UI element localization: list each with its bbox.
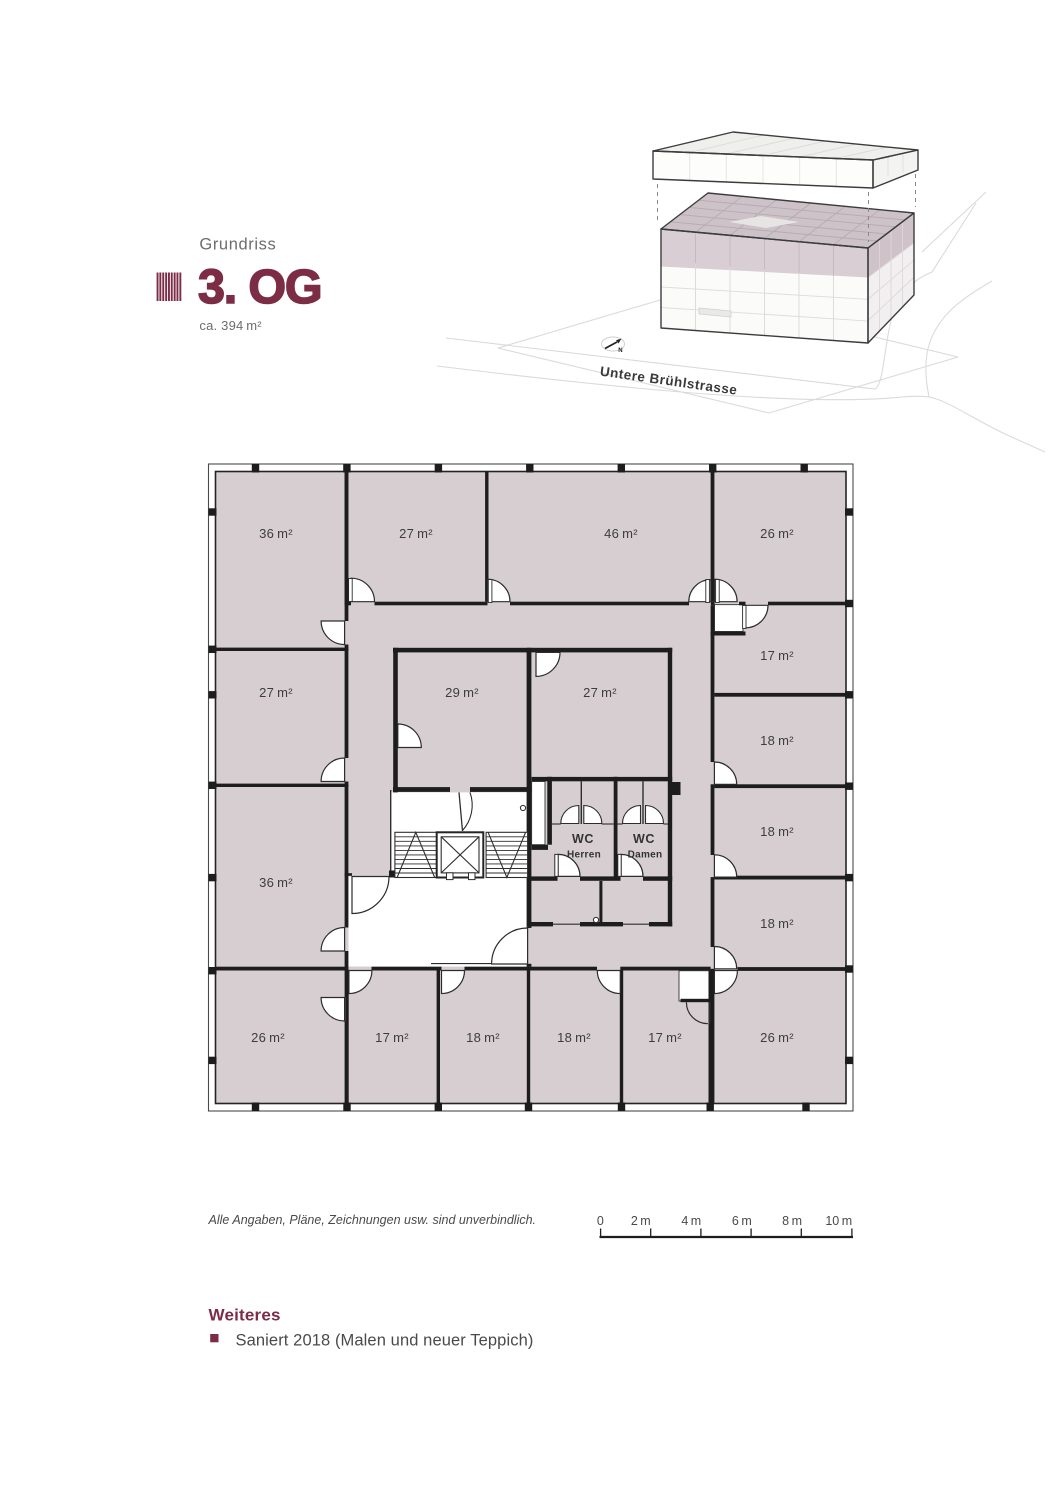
svg-text:Grundriss: Grundriss	[199, 236, 276, 254]
svg-text:WC: WC	[633, 832, 655, 846]
svg-text:36 m²: 36 m²	[259, 526, 293, 541]
svg-text:36 m²: 36 m²	[259, 875, 293, 890]
svg-text:26 m²: 26 m²	[760, 1030, 794, 1045]
svg-text:18 m²: 18 m²	[760, 824, 794, 839]
svg-text:6 m: 6 m	[732, 1214, 752, 1228]
svg-text:17 m²: 17 m²	[648, 1030, 682, 1045]
svg-text:17 m²: 17 m²	[760, 648, 794, 663]
svg-text:18 m²: 18 m²	[557, 1030, 591, 1045]
svg-text:Damen: Damen	[628, 850, 663, 861]
svg-text:27 m²: 27 m²	[583, 685, 617, 700]
svg-text:Herren: Herren	[567, 850, 601, 861]
svg-text:8 m: 8 m	[782, 1214, 802, 1228]
svg-text:29 m²: 29 m²	[445, 685, 479, 700]
svg-text:2 m: 2 m	[631, 1214, 651, 1228]
svg-text:Weiteres: Weiteres	[209, 1306, 281, 1325]
svg-text:ca. 394 m²: ca. 394 m²	[199, 318, 262, 333]
svg-text:26 m²: 26 m²	[760, 526, 794, 541]
svg-text:18 m²: 18 m²	[466, 1030, 500, 1045]
svg-text:4 m: 4 m	[681, 1214, 701, 1228]
svg-text:27 m²: 27 m²	[259, 685, 293, 700]
svg-text:0: 0	[597, 1214, 604, 1228]
svg-text:26 m²: 26 m²	[251, 1030, 285, 1045]
svg-text:Alle Angaben, Pläne, Zeichnung: Alle Angaben, Pläne, Zeichnungen usw. si…	[208, 1213, 537, 1227]
svg-text:17 m²: 17 m²	[375, 1030, 409, 1045]
svg-text:3. OG: 3. OG	[198, 260, 321, 314]
svg-text:27 m²: 27 m²	[399, 526, 433, 541]
svg-text:WC: WC	[572, 832, 594, 846]
svg-text:46 m²: 46 m²	[604, 526, 638, 541]
svg-text:Saniert 2018 (Malen und neuer: Saniert 2018 (Malen und neuer Teppich)	[236, 1332, 534, 1350]
svg-text:18 m²: 18 m²	[760, 733, 794, 748]
svg-text:10 m: 10 m	[825, 1214, 852, 1228]
svg-text:N: N	[618, 348, 623, 354]
svg-text:18 m²: 18 m²	[760, 916, 794, 931]
